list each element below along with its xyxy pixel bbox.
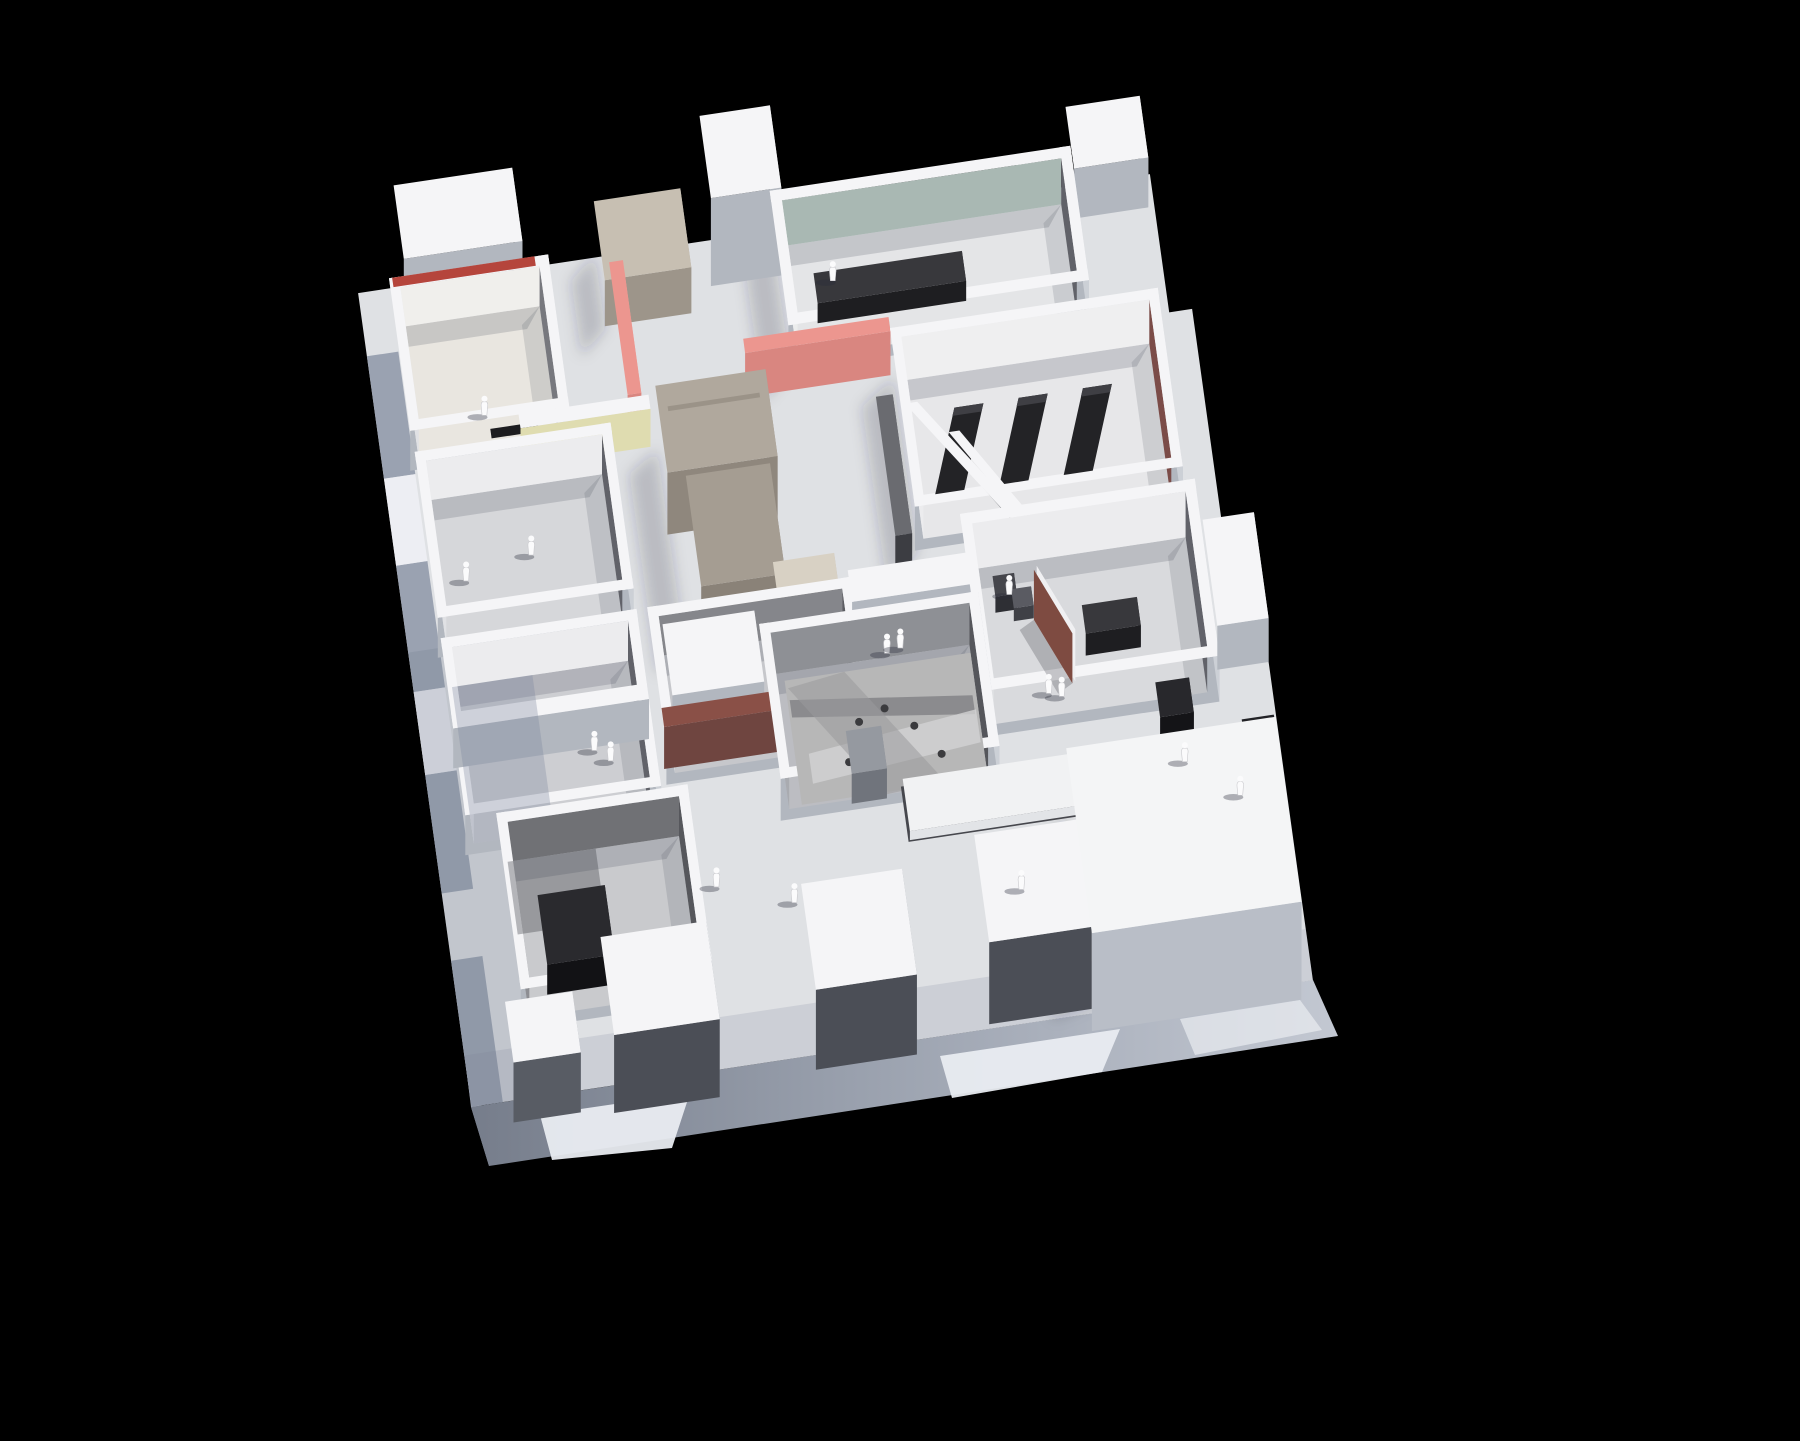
edge-block-d xyxy=(974,820,1091,1025)
white-tower xyxy=(700,105,782,286)
concrete-top-block xyxy=(594,188,692,326)
model-photo-stage xyxy=(0,0,1800,1441)
edge-block-c xyxy=(801,869,917,1070)
edge-block-a xyxy=(505,992,581,1123)
architectural-model-photo xyxy=(0,0,1800,1441)
roof-block-top-right xyxy=(1066,96,1149,219)
edge-block-b xyxy=(601,921,720,1113)
